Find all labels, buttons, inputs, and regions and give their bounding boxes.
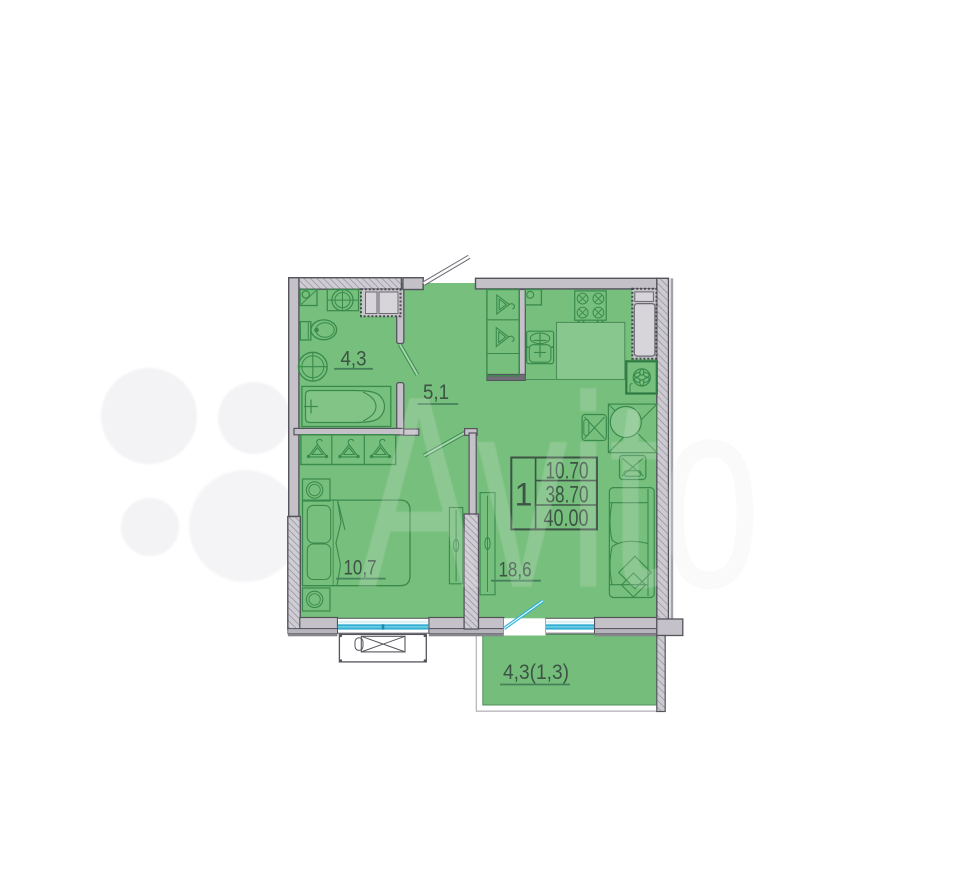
svg-text:4,3(1,3): 4,3(1,3)	[503, 661, 569, 684]
